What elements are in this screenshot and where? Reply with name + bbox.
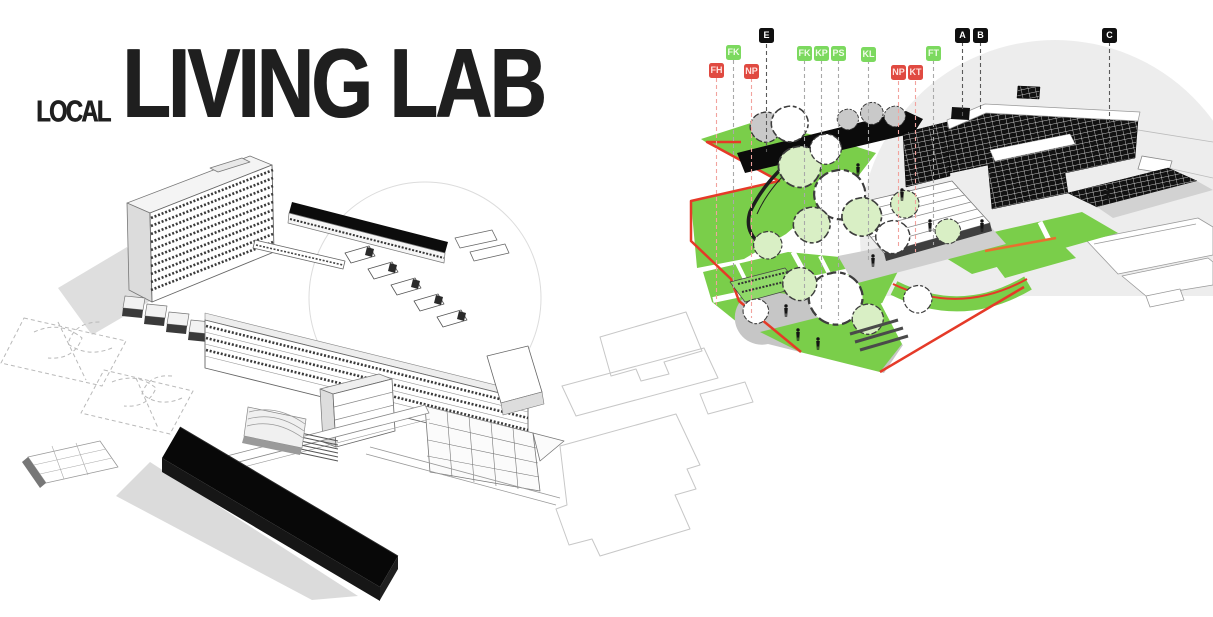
marker-chip-label: PS	[831, 46, 846, 61]
marker-FH: FH	[709, 63, 724, 78]
marker-chip-label: B	[973, 28, 988, 43]
marker-chip-label: FK	[797, 46, 812, 61]
marker-NP-1: NP	[744, 64, 759, 79]
marker-chip-label: E	[759, 28, 774, 43]
marker-E: E	[759, 28, 774, 43]
vault-hall	[242, 407, 306, 455]
sawtooth-buildings	[122, 296, 211, 342]
marker-chip-label: KT	[908, 65, 923, 80]
logo-local-living-lab: LOCAL LIVING LAB	[36, 48, 591, 127]
logo-main: LIVING LAB	[122, 38, 544, 127]
marker-A: A	[955, 28, 970, 43]
right-site-diagram	[691, 40, 1213, 617]
marker-chip-label: C	[1102, 28, 1117, 43]
poster-canvas: LOCAL LIVING LAB FH FK NP E FK KP PS KL …	[0, 0, 1213, 617]
marker-chip-label: NP	[891, 65, 906, 80]
marker-chip-label: FK	[726, 45, 741, 60]
marker-chip-label: KP	[814, 46, 829, 61]
marker-PS: PS	[831, 46, 846, 61]
marker-chip-label: KL	[861, 47, 876, 62]
marker-KP: KP	[814, 46, 829, 61]
marker-FK-2: FK	[797, 46, 812, 61]
left-campus-drawing	[1, 156, 753, 601]
marker-FT: FT	[926, 46, 941, 61]
finger-blocks	[345, 246, 467, 327]
small-blocks	[455, 230, 509, 261]
grid-hall	[22, 441, 118, 488]
sports-courts	[1, 318, 193, 434]
marker-KL: KL	[861, 47, 876, 62]
marker-FK-1: FK	[726, 45, 741, 60]
marker-chip-label: NP	[744, 64, 759, 79]
marker-chip-label: A	[955, 28, 970, 43]
site-outline-polygons	[556, 312, 753, 556]
marker-chip-label: FH	[709, 63, 724, 78]
logo-prefix: LOCAL	[36, 97, 109, 127]
marker-B: B	[973, 28, 988, 43]
marker-NP-2: NP	[891, 65, 906, 80]
marker-C: C	[1102, 28, 1117, 43]
marker-chip-label: FT	[926, 46, 941, 61]
tower-building	[127, 156, 274, 302]
marker-KT: KT	[908, 65, 923, 80]
